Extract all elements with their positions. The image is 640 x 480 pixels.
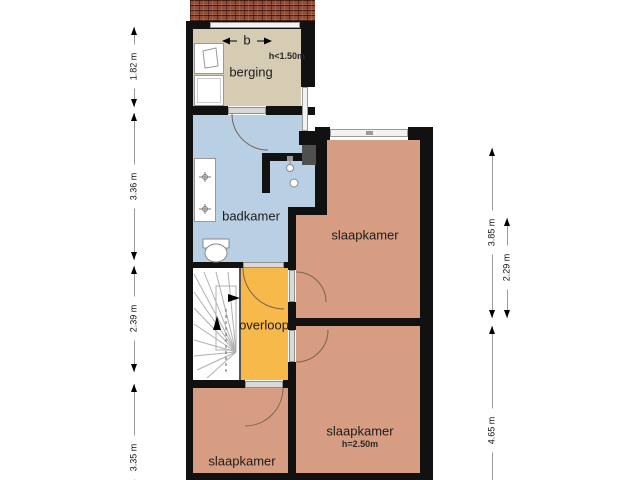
dim-label-left-4: 3.35 m <box>128 436 141 480</box>
dim-label-right-1: 3.85 m <box>486 211 499 255</box>
dim-arrow <box>504 218 510 226</box>
dim-arrow <box>131 252 137 260</box>
sink-counter-icon <box>195 159 216 222</box>
dim-arrow <box>131 364 137 372</box>
dim-label-left-3: 2.39 m <box>128 297 141 341</box>
dim-label-left-1: 1.82 m <box>128 45 141 89</box>
stairs-direction-arrow-icon <box>228 294 240 302</box>
dim-arrow <box>489 326 495 334</box>
washer-icon <box>195 76 224 106</box>
dim-label-right-2: 2.29 m <box>501 246 514 290</box>
dim-arrow <box>489 310 495 318</box>
door-arc-overloop-slaapkamer-top <box>296 272 326 302</box>
dim-arrow <box>504 310 510 318</box>
toilet-icon <box>203 239 229 262</box>
overloop-label: overloop <box>239 318 289 333</box>
slaapkamer-br-label: slaapkamer <box>326 424 393 439</box>
dim-arrow <box>489 148 495 156</box>
slaapkamer-top-label: slaapkamer <box>331 228 398 243</box>
dim-arrow <box>131 113 137 121</box>
berging-label: berging <box>229 65 272 80</box>
badkamer-label: badkamer <box>222 209 280 224</box>
door-arc-badkamer-overloop <box>243 268 284 309</box>
fixtures-layer <box>0 0 640 480</box>
shower-drain-icon <box>290 179 298 187</box>
dim-arrow <box>131 99 137 107</box>
stairs-up-arrow-icon <box>213 316 221 330</box>
slaapkamer-br-height-note: h=2.50m <box>342 439 378 449</box>
door-arc-overloop-slaapkamer-bl <box>245 388 283 426</box>
door-arc-berging-badkamer <box>232 114 268 150</box>
dim-arrow <box>131 27 137 35</box>
dim-label-left-2: 3.36 m <box>128 165 141 209</box>
dim-line-right-3 <box>492 326 493 480</box>
shower-head-icon <box>287 156 294 172</box>
floor-plan: b h<1.50m berging badkamer slaapkamer ov… <box>0 0 640 480</box>
berging-marker: b <box>243 33 250 48</box>
dim-arrow <box>131 266 137 274</box>
slope-arrow-left-icon <box>222 38 237 45</box>
dim-arrow <box>131 384 137 392</box>
dim-label-right-3: 4.65 m <box>486 409 499 453</box>
slope-arrow-right-icon <box>257 38 272 45</box>
door-arc-overloop-slaapkamer-br <box>296 330 328 362</box>
slaapkamer-bl-label: slaapkamer <box>208 454 275 469</box>
berging-height-note: h<1.50m <box>269 51 305 61</box>
boiler-icon <box>195 44 224 74</box>
